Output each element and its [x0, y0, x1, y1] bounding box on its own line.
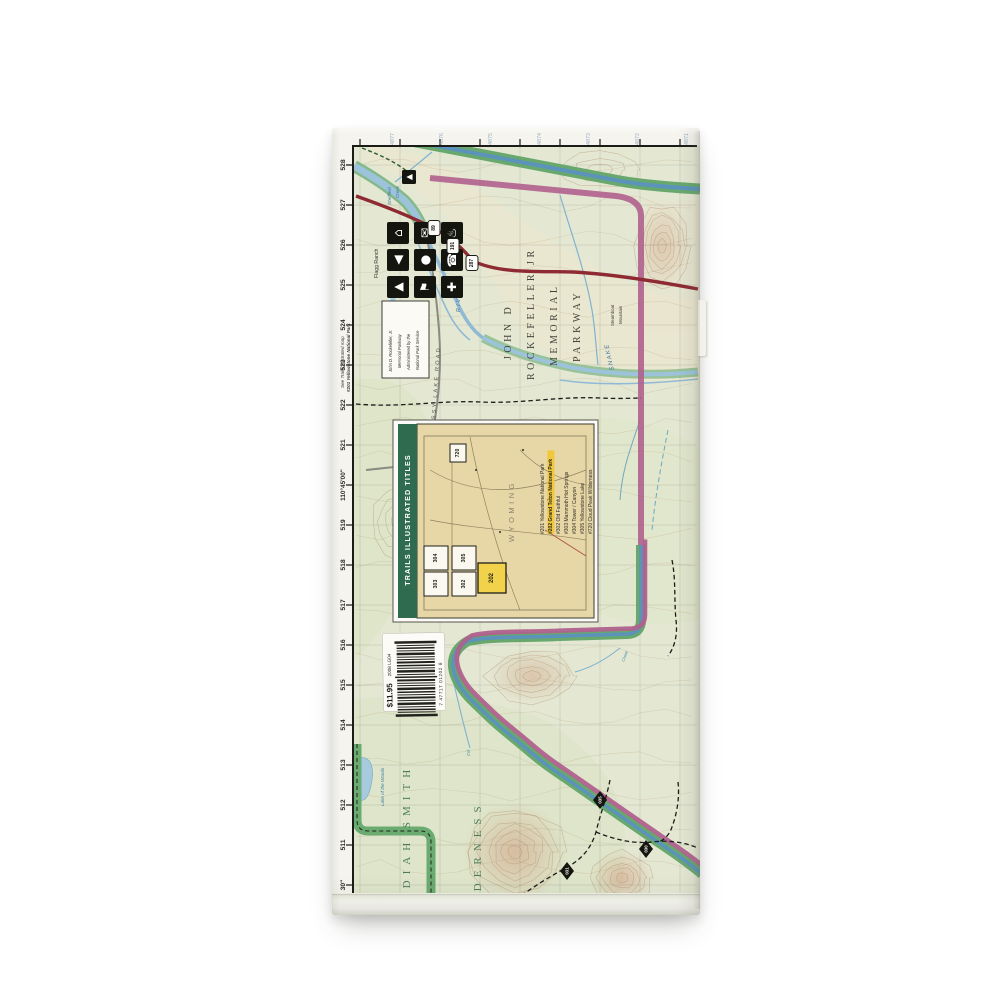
- easting-label: 516: [340, 639, 347, 651]
- hot-spring-icon: ♨: [445, 228, 459, 239]
- inset-title-item: #302 Old Faithful: [556, 496, 562, 534]
- inset-quad-number: 303: [433, 580, 439, 589]
- flag-station-icon: ⚑: [418, 282, 432, 293]
- northing-label: 4873: [586, 133, 592, 145]
- inset-title-item: #201 Yellowstone National Park: [540, 463, 546, 534]
- campground-icon: ▲: [391, 282, 405, 292]
- flagg-ranch-label: Flagg Ranch: [374, 248, 380, 278]
- lake-of-the-woods-label: Lake of the Woods: [380, 767, 385, 806]
- svg-text:#201 Yellowstone National Park: #201 Yellowstone National Park: [346, 323, 351, 392]
- easting-label: 30": [340, 880, 347, 891]
- easting-label: 521: [340, 439, 347, 451]
- adjacent-map-note: See Trails Illustrated map: [340, 336, 345, 388]
- svg-text:Administered by the: Administered by the: [406, 333, 411, 371]
- svg-text:National Park Service: National Park Service: [415, 330, 420, 370]
- folded-map-sheet: Sheffield Creek Flagg Ranch RIVER SNAKE …: [332, 128, 700, 915]
- easting-label: 527: [340, 199, 347, 211]
- price-label: $11.95: [385, 683, 394, 708]
- boat-launch-icon: ◀: [391, 255, 405, 265]
- northing-label: 4875: [488, 133, 494, 145]
- northing-label: 4872: [635, 133, 641, 145]
- wyoming-label: WYOMING: [507, 480, 516, 542]
- easting-label: 514: [340, 719, 347, 731]
- trail-marker-number: 035: [598, 796, 603, 804]
- easting-label: 511: [340, 839, 347, 850]
- easting-label: 517: [340, 599, 347, 611]
- northing-label: 4871: [684, 133, 690, 145]
- inset-title-item: #202 Grand Teton National Park: [548, 459, 554, 534]
- easting-label: 525: [340, 279, 347, 291]
- easting-label: 512: [340, 799, 347, 811]
- edition-code: 2008 LG04: [387, 653, 392, 676]
- inset-title-item: #305 Yellowstone Lake: [580, 483, 586, 534]
- trail-marker-number: 030: [644, 845, 649, 853]
- inset-panel: TRAILS ILLUSTRATED TITLES 30430530330272…: [393, 420, 598, 622]
- svg-text:Memorial Parkway: Memorial Parkway: [397, 333, 402, 368]
- map-interior: Sheffield Creek Flagg Ranch RIVER SNAKE …: [353, 132, 700, 915]
- trail-marker-number: 031: [565, 867, 570, 875]
- barcode-digits: 7 47717 01202 8: [438, 662, 444, 706]
- parkway-admin-note: John D. Rockefeller, Jr. Memorial Parkwa…: [382, 301, 429, 378]
- trailhead-icon: ▲: [405, 173, 414, 180]
- highway-shield-number: 287: [469, 259, 475, 268]
- svg-text:Mountain: Mountain: [618, 305, 623, 324]
- inset-quad-number: 305: [461, 554, 467, 563]
- inset-quad-number: 202: [489, 572, 495, 583]
- parkway-label: JOHN D: [503, 304, 514, 360]
- easting-label: 528: [340, 159, 347, 171]
- svg-text:Crk: Crk: [466, 749, 471, 756]
- easting-label: 513: [340, 759, 347, 771]
- svg-text:ROCKEFELLER JR: ROCKEFELLER JR: [526, 247, 537, 380]
- ranger-station-icon: ●: [418, 255, 432, 265]
- first-aid-icon: ✚: [445, 282, 459, 292]
- inset-title: TRAILS ILLUSTRATED TITLES: [403, 454, 412, 586]
- sheffield-creek-label: Sheffield: [387, 187, 392, 205]
- easting-label: 515: [340, 679, 347, 691]
- steamboat-mountain-label: Steamboat: [610, 304, 615, 326]
- northing-label: 4876: [439, 133, 445, 145]
- highway-shield-number: 89: [431, 225, 437, 231]
- inset-quad-number: 302: [461, 580, 467, 589]
- lodging-icon: ⌂: [391, 229, 405, 237]
- northing-label: 4874: [537, 133, 543, 145]
- highway-shield-number: 191: [450, 242, 456, 251]
- inset-quad-number: 720: [455, 449, 461, 458]
- map-artwork: Sheffield Creek Flagg Ranch RIVER SNAKE …: [332, 128, 700, 915]
- inset-quad-number: 304: [433, 554, 439, 563]
- inset-title-item: #304 Tower / Canyon: [572, 487, 578, 534]
- svg-text:MEMORIAL: MEMORIAL: [549, 284, 560, 366]
- barcode-block: $11.95 2008 LG04 7 47717 01202 8: [382, 632, 445, 717]
- easting-label: 526: [340, 239, 347, 251]
- inset-title-item: #720 Cloud Peak Wilderness: [588, 469, 594, 534]
- svg-text:PARKWAY: PARKWAY: [572, 290, 583, 362]
- svg-text:John D. Rockefeller, Jr.: John D. Rockefeller, Jr.: [388, 330, 393, 373]
- jedediah-smith-label: JEDEDIAH SMITH: [401, 764, 413, 915]
- northing-label: 4877: [390, 133, 396, 145]
- easting-label: 522: [340, 399, 347, 411]
- easting-label: 110°45'00": [339, 469, 347, 501]
- inset-title-item: #303 Mammoth Hot Springs: [564, 471, 570, 534]
- product-photo: Sheffield Creek Flagg Ranch RIVER SNAKE …: [0, 0, 1004, 1004]
- easting-label: 518: [340, 559, 347, 571]
- telephone-icon: ☎: [445, 252, 459, 267]
- easting-label: 519: [340, 519, 347, 531]
- svg-text:Creek: Creek: [395, 185, 400, 198]
